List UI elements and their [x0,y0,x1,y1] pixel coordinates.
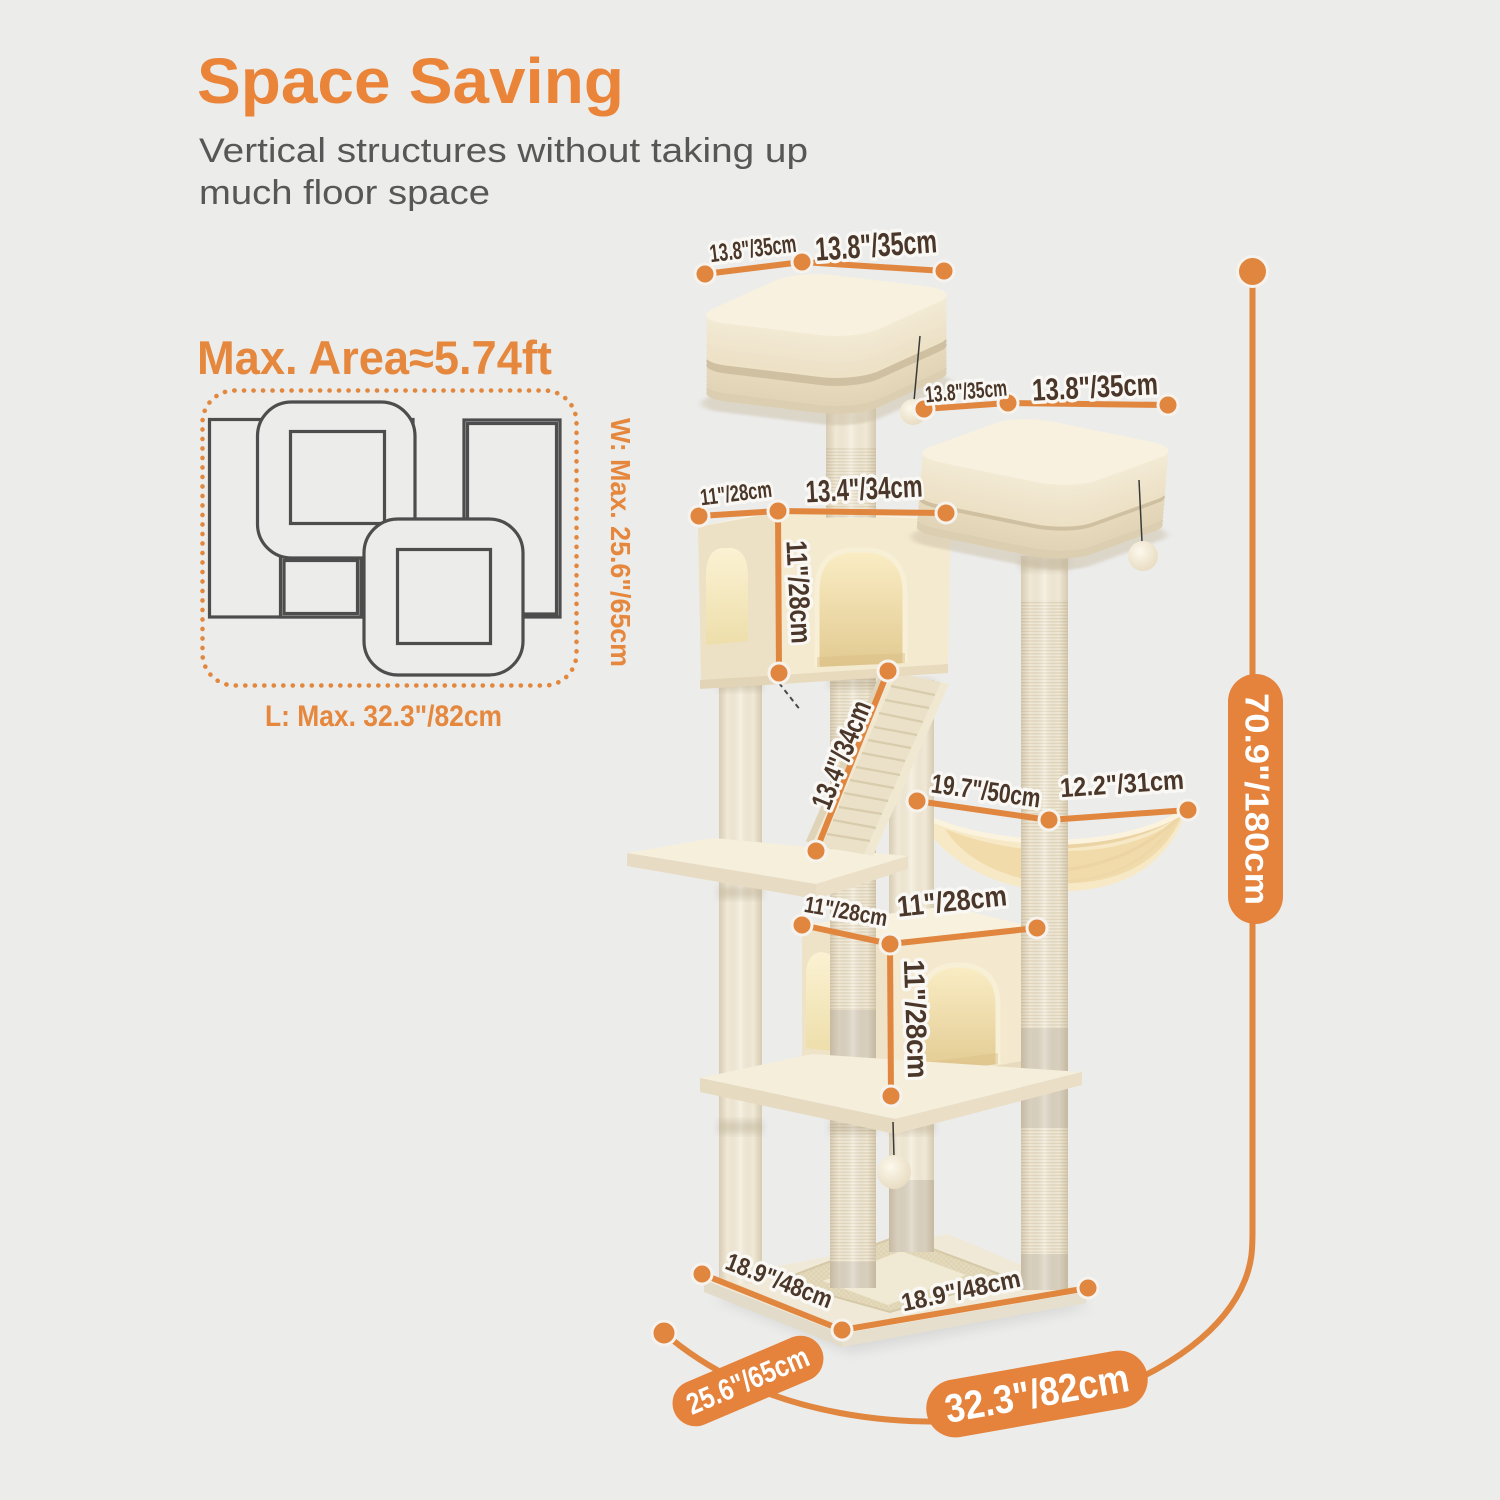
svg-text:Vertical structures without ta: Vertical structures without taking up [199,132,808,170]
svg-text:L: Max. 32.3"/82cm: L: Max. 32.3"/82cm [265,700,502,733]
svg-text:much floor space: much floor space [199,174,490,212]
svg-text:Max. Area≈5.74ft: Max. Area≈5.74ft [197,331,552,384]
svg-text:13.8"/35cm: 13.8"/35cm [1031,366,1159,408]
svg-text:Space Saving: Space Saving [197,45,624,117]
svg-text:11"/28cm: 11"/28cm [897,959,933,1079]
svg-text:W: Max. 25.6"/65cm: W: Max. 25.6"/65cm [605,418,636,667]
svg-text:11"/28cm: 11"/28cm [779,540,816,645]
svg-text:13.4"/34cm: 13.4"/34cm [805,468,924,509]
svg-text:70.9"/180cm: 70.9"/180cm [1239,693,1276,905]
